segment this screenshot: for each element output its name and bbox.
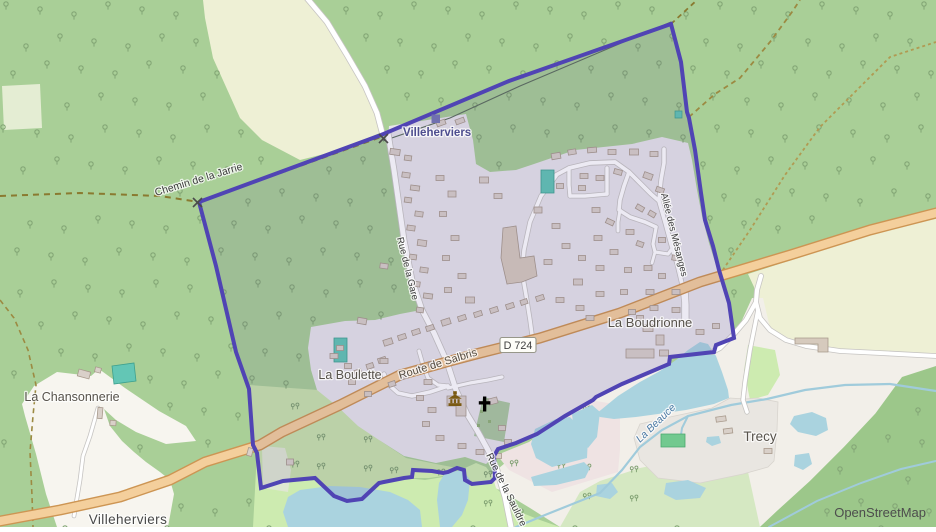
svg-text:Villeherviers: Villeherviers — [403, 127, 471, 139]
svg-text:La Boulette: La Boulette — [318, 368, 381, 382]
svg-text:La Boudrionne: La Boudrionne — [608, 315, 693, 330]
svg-text:Trecy: Trecy — [743, 429, 776, 444]
svg-text:D 724: D 724 — [504, 340, 533, 352]
svg-text:OpenStreetMap: OpenStreetMap — [834, 505, 926, 520]
svg-text:Villeherviers: Villeherviers — [89, 512, 167, 527]
svg-text:La Chansonnerie: La Chansonnerie — [24, 390, 119, 404]
